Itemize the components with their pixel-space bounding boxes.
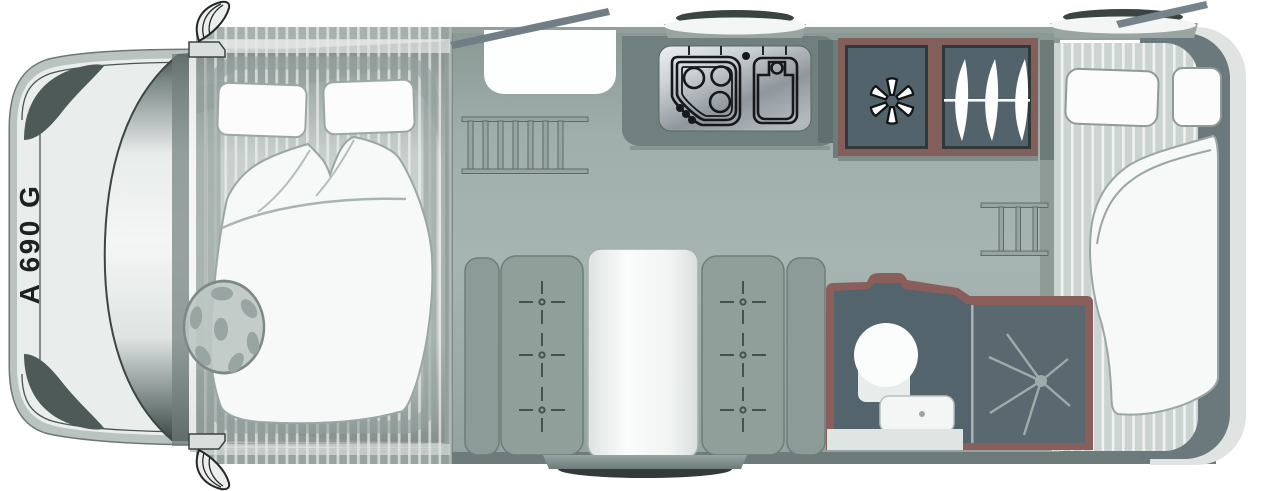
svg-text:A 690 G: A 690 G — [14, 184, 45, 305]
